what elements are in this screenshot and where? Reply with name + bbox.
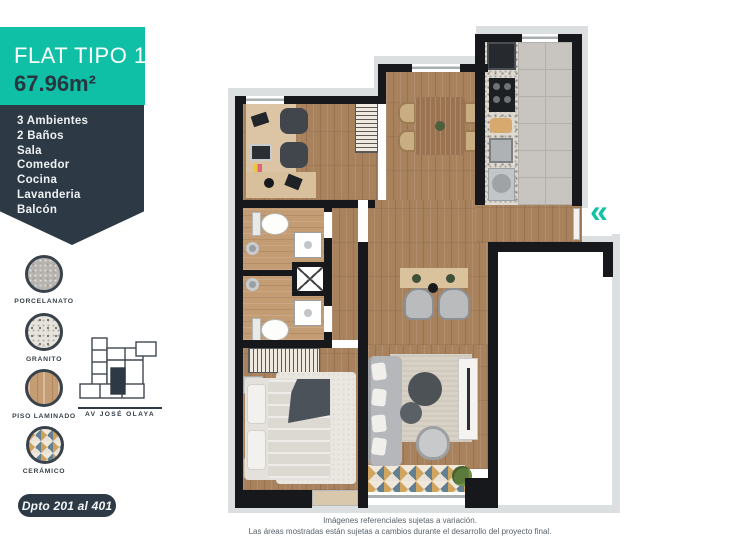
wall (243, 270, 292, 276)
exterior-outline (612, 234, 620, 513)
sink-drain (304, 309, 312, 317)
toilet-tank (252, 212, 261, 236)
material-swatch-porcelanato (25, 255, 63, 293)
refrigerator (487, 42, 516, 70)
console-plant (412, 274, 421, 283)
wall (235, 96, 243, 508)
sink-drain (304, 241, 312, 249)
wall (475, 34, 485, 205)
armchair (416, 426, 450, 460)
washer-door (492, 174, 511, 193)
flyer-page: FLAT TIPO 1 67.96m² 3 Ambientes 2 Baños … (0, 0, 730, 547)
wall (235, 200, 375, 208)
feature-item: Comedor (17, 158, 144, 173)
coffee-table (408, 372, 442, 406)
disclaimer-line: Imágenes referenciales sujetas a variaci… (150, 515, 650, 526)
window (246, 96, 284, 104)
wall (460, 64, 488, 72)
table-plant (435, 121, 445, 131)
entrance-chevron-icon: « (590, 196, 608, 226)
window (522, 34, 558, 42)
feature-item: Sala (17, 144, 144, 159)
feature-item: Balcón (17, 203, 144, 218)
unit-range-badge: Dpto 201 al 401 (18, 494, 116, 517)
tv (467, 368, 470, 430)
wall (358, 242, 368, 508)
toilet (261, 319, 289, 341)
wall (488, 242, 613, 252)
floor-plan: « (228, 26, 624, 513)
sofa-pillow (371, 437, 387, 456)
dining-chair (398, 102, 416, 124)
balcony-glass (368, 492, 465, 502)
entry-floor (475, 205, 582, 242)
material-swatch-piso-laminado (25, 369, 63, 407)
stool (404, 288, 434, 320)
stove (489, 78, 515, 112)
wall (235, 490, 312, 508)
exterior-outline (374, 56, 484, 64)
shower-head (246, 242, 259, 255)
wall (235, 340, 332, 348)
wall (324, 238, 332, 306)
stove-burner (493, 83, 500, 90)
kitchen-floor (518, 42, 572, 205)
dining-chair (398, 130, 416, 152)
toilet-tank (252, 318, 261, 342)
console-plant (446, 274, 455, 283)
office-chair (280, 108, 308, 134)
bedroom-window-sill (312, 490, 358, 506)
kitchen-sink (489, 138, 513, 163)
shower-head (246, 278, 259, 291)
exterior-outline (476, 26, 588, 34)
features-banner: 3 Ambientes 2 Baños Sala Comedor Cocina … (0, 105, 144, 245)
closet (355, 98, 378, 153)
desk-bowl (264, 178, 274, 188)
wall (480, 34, 522, 42)
toilet (261, 213, 289, 235)
window (412, 64, 460, 72)
wall (378, 64, 386, 104)
material-swatch-granito (25, 313, 63, 351)
wall (488, 242, 498, 508)
material-swatch-ceramico (26, 426, 64, 464)
wall (284, 96, 378, 104)
sofa-pillow (371, 362, 387, 381)
key-plan: AV JOSÉ OLAYA (78, 336, 166, 418)
stove-burner (504, 96, 511, 103)
feature-item: 3 Ambientes (17, 114, 144, 129)
material-label: PORCELANATO (0, 298, 92, 305)
building-footprint-icon (78, 336, 166, 400)
sofa-pillow (371, 414, 387, 432)
door-opening (324, 306, 332, 332)
desk (246, 172, 316, 198)
desk-accessory (253, 164, 262, 172)
office-chair (280, 142, 308, 168)
pillow (247, 430, 266, 470)
feature-item: Cocina (17, 173, 144, 188)
door-opening (324, 212, 332, 238)
exterior-outline (228, 88, 386, 96)
stove-burner (493, 96, 500, 103)
wall (465, 478, 498, 508)
disclaimer-line: Las áreas mostradas están sujetas a camb… (150, 526, 650, 537)
void-area (498, 252, 612, 505)
street-line (78, 407, 162, 409)
unit-type-header: FLAT TIPO 1 67.96m² (0, 27, 145, 105)
door-opening (358, 200, 368, 242)
features-list: 3 Ambientes 2 Baños Sala Comedor Cocina … (0, 105, 144, 218)
exterior-outline (492, 505, 620, 513)
wall (572, 34, 582, 206)
cutting-board (490, 118, 512, 133)
material-label: CERÁMICO (0, 468, 92, 475)
feature-item: 2 Baños (17, 129, 144, 144)
page-title: FLAT TIPO 1 (14, 43, 145, 69)
sofa-pillow (371, 388, 387, 406)
coffee-table (400, 402, 422, 424)
duct-shaft (292, 262, 328, 296)
balcony-floor (368, 465, 465, 495)
feature-item: Lavanderia (17, 188, 144, 203)
wall (603, 242, 613, 277)
stove-burner (504, 83, 511, 90)
wardrobe (248, 348, 320, 373)
wall (324, 200, 332, 212)
disclaimer: Imágenes referenciales sujetas a variaci… (150, 515, 650, 537)
pillow (247, 384, 266, 424)
area-value: 67.96m² (14, 71, 145, 97)
entry-door (573, 208, 580, 240)
wall (324, 332, 332, 340)
monitor (250, 144, 272, 161)
stool (438, 288, 470, 320)
street-label: AV JOSÉ OLAYA (78, 411, 162, 418)
door-opening (332, 340, 358, 348)
